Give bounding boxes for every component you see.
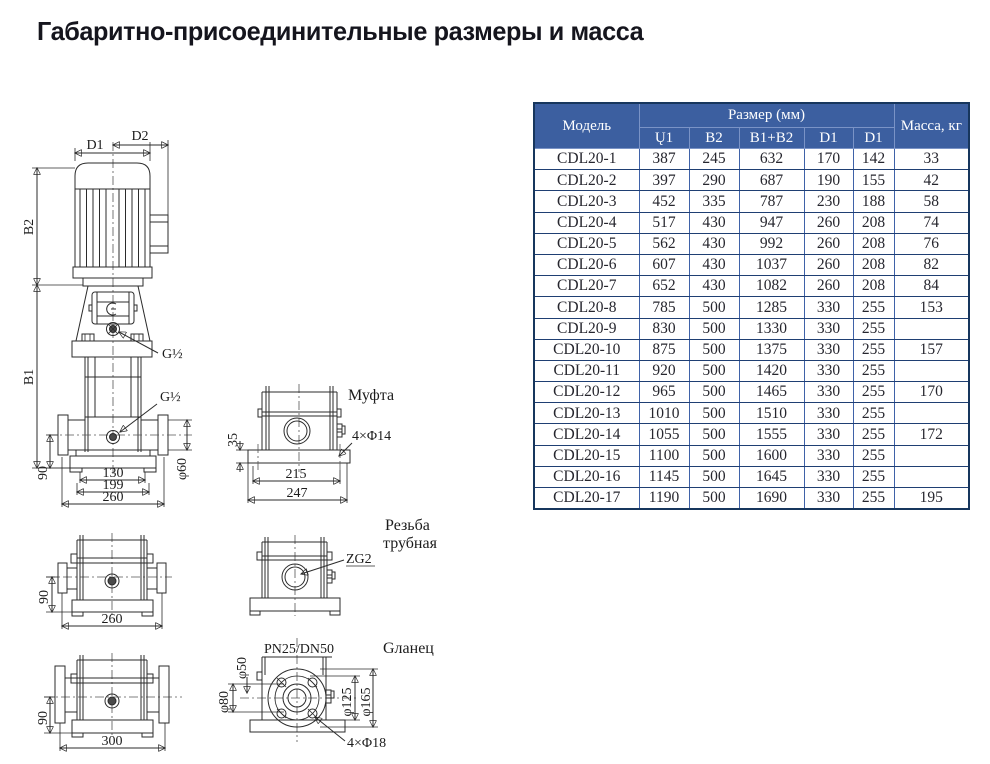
dim-label-90b: 90 <box>37 590 52 604</box>
cell-model: CDL20-2 <box>534 170 639 191</box>
cell-b2: 500 <box>689 488 739 510</box>
cell-b1b2: 1330 <box>739 318 804 339</box>
cell-d1b: 255 <box>853 318 894 339</box>
cell-d1b: 208 <box>853 212 894 233</box>
dim-label-90: 90 <box>36 466 51 480</box>
thread-caption-line2: трубная <box>383 535 438 552</box>
cell-model: CDL20-5 <box>534 233 639 254</box>
cell-b2: 500 <box>689 339 739 360</box>
dim-label-d1: D1 <box>86 138 103 153</box>
cell-d1a: 230 <box>804 191 853 212</box>
cell-d1b: 255 <box>853 382 894 403</box>
cell-model: CDL20-9 <box>534 318 639 339</box>
dim-label-phi80: φ80 <box>217 691 232 713</box>
cell-d1b: 255 <box>853 466 894 487</box>
table-row: CDL20-1310105001510330255 <box>534 403 969 424</box>
cell-mass <box>894 403 969 424</box>
cell-b1b2: 1510 <box>739 403 804 424</box>
table-row: CDL20-108755001375330255157 <box>534 339 969 360</box>
dim-label-260: 260 <box>103 490 124 505</box>
cell-model: CDL20-1 <box>534 149 639 170</box>
cell-u1: 1100 <box>639 445 689 466</box>
cell-b1b2: 1285 <box>739 297 804 318</box>
thread-caption-line1: Резьба <box>385 517 430 534</box>
cell-mass: 42 <box>894 170 969 191</box>
col-header-b2: B2 <box>689 128 739 149</box>
cell-model: CDL20-4 <box>534 212 639 233</box>
cell-d1b: 208 <box>853 254 894 275</box>
cell-d1b: 208 <box>853 233 894 254</box>
table-row: CDL20-1611455001645330255 <box>534 466 969 487</box>
cell-b1b2: 1037 <box>739 254 804 275</box>
flange-rating-label: PN25/DN50 <box>264 642 334 657</box>
cell-d1b: 208 <box>853 276 894 297</box>
cell-b1b2: 1645 <box>739 466 804 487</box>
cell-model: CDL20-8 <box>534 297 639 318</box>
cell-mass: 195 <box>894 488 969 510</box>
dim-label-phi60: φ60 <box>175 458 190 480</box>
cell-b1b2: 992 <box>739 233 804 254</box>
table-row: CDL20-345233578723018858 <box>534 191 969 212</box>
col-header-d1a: D1 <box>804 128 853 149</box>
cell-mass: 157 <box>894 339 969 360</box>
cell-d1a: 330 <box>804 424 853 445</box>
cell-u1: 785 <box>639 297 689 318</box>
cell-d1a: 330 <box>804 360 853 381</box>
cell-d1b: 255 <box>853 360 894 381</box>
col-header-d1b: D1 <box>853 128 894 149</box>
cell-b2: 500 <box>689 403 739 424</box>
dim-label-247: 247 <box>287 486 308 501</box>
table-row: CDL20-451743094726020874 <box>534 212 969 233</box>
dim-label-260b: 260 <box>102 612 123 627</box>
cell-d1a: 260 <box>804 276 853 297</box>
cell-b2: 500 <box>689 424 739 445</box>
table-row: CDL20-129655001465330255170 <box>534 382 969 403</box>
cell-b1b2: 1465 <box>739 382 804 403</box>
cell-u1: 1145 <box>639 466 689 487</box>
technical-drawings: G½ G½ D1 D2 B2 <box>0 0 520 764</box>
cell-d1a: 170 <box>804 149 853 170</box>
table-row: CDL20-1511005001600330255 <box>534 445 969 466</box>
cell-mass: 76 <box>894 233 969 254</box>
cell-model: CDL20-10 <box>534 339 639 360</box>
table-row: CDL20-1711905001690330255195 <box>534 488 969 510</box>
table-row: CDL20-556243099226020876 <box>534 233 969 254</box>
cell-u1: 452 <box>639 191 689 212</box>
cell-d1a: 260 <box>804 212 853 233</box>
cell-mass: 172 <box>894 424 969 445</box>
cell-mass: 84 <box>894 276 969 297</box>
cell-model: CDL20-17 <box>534 488 639 510</box>
table-row: CDL20-7652430108226020884 <box>534 276 969 297</box>
coupling-holes-label: 4×Φ14 <box>352 429 391 444</box>
cell-mass: 153 <box>894 297 969 318</box>
cell-b1b2: 947 <box>739 212 804 233</box>
cell-b2: 500 <box>689 360 739 381</box>
cell-u1: 1055 <box>639 424 689 445</box>
thread-size-label: ZG2 <box>346 552 372 567</box>
page: { "page": { "title": "Габаритно-присоеди… <box>0 0 990 764</box>
thread-view-drawing: ZG2 Резьба трубная <box>250 517 438 616</box>
cell-mass <box>894 466 969 487</box>
dim-label-phi125: φ125 <box>340 687 355 716</box>
dim-label-90c: 90 <box>36 711 51 725</box>
dim-label-phi50: φ50 <box>235 657 250 679</box>
table-row: CDL20-87855001285330255153 <box>534 297 969 318</box>
cell-mass: 33 <box>894 149 969 170</box>
col-header-mass: Масса, кг <box>894 103 969 149</box>
cell-u1: 920 <box>639 360 689 381</box>
cell-b2: 290 <box>689 170 739 191</box>
cell-model: CDL20-6 <box>534 254 639 275</box>
cell-u1: 397 <box>639 170 689 191</box>
col-header-size-group: Размер (мм) <box>639 103 894 128</box>
cell-b1b2: 1600 <box>739 445 804 466</box>
cell-d1b: 255 <box>853 424 894 445</box>
cell-mass <box>894 318 969 339</box>
cell-b1b2: 787 <box>739 191 804 212</box>
cell-u1: 562 <box>639 233 689 254</box>
cell-d1a: 330 <box>804 466 853 487</box>
table-body: CDL20-138724563217014233CDL20-2397290687… <box>534 149 969 510</box>
cell-model: CDL20-13 <box>534 403 639 424</box>
cell-mass: 58 <box>894 191 969 212</box>
cell-d1a: 330 <box>804 403 853 424</box>
cell-u1: 652 <box>639 276 689 297</box>
flange-caption: Gланец <box>383 640 434 657</box>
cell-b1b2: 1420 <box>739 360 804 381</box>
cell-b1b2: 1082 <box>739 276 804 297</box>
dim-label-35: 35 <box>226 433 241 447</box>
cell-u1: 830 <box>639 318 689 339</box>
cell-u1: 965 <box>639 382 689 403</box>
cell-d1a: 330 <box>804 318 853 339</box>
cell-b1b2: 1690 <box>739 488 804 510</box>
cell-d1a: 330 <box>804 488 853 510</box>
cell-d1b: 255 <box>853 488 894 510</box>
dimensions-table: Модель Размер (мм) Масса, кг Ų1 B2 B1+B2… <box>533 102 970 510</box>
cell-d1b: 188 <box>853 191 894 212</box>
cell-b2: 430 <box>689 212 739 233</box>
cell-d1b: 255 <box>853 445 894 466</box>
cell-mass: 82 <box>894 254 969 275</box>
coupling-caption: Муфта <box>348 387 394 404</box>
cell-b2: 335 <box>689 191 739 212</box>
cell-d1b: 255 <box>853 297 894 318</box>
dim-label-phi165: φ165 <box>359 687 374 716</box>
cell-model: CDL20-11 <box>534 360 639 381</box>
flange-view-drawing: PN25/DN50 φ50 φ80 φ125 φ165 <box>217 638 434 751</box>
table-header: Модель Размер (мм) Масса, кг Ų1 B2 B1+B2… <box>534 103 969 149</box>
cell-d1a: 330 <box>804 339 853 360</box>
cell-d1b: 255 <box>853 339 894 360</box>
cell-b2: 430 <box>689 233 739 254</box>
cell-b2: 500 <box>689 382 739 403</box>
cell-mass <box>894 445 969 466</box>
cell-u1: 387 <box>639 149 689 170</box>
cell-model: CDL20-14 <box>534 424 639 445</box>
dim-label-g-top: G½ <box>162 347 183 362</box>
table-row: CDL20-6607430103726020882 <box>534 254 969 275</box>
cell-d1b: 255 <box>853 403 894 424</box>
cell-u1: 1190 <box>639 488 689 510</box>
cell-b2: 430 <box>689 254 739 275</box>
dim-label-b2: B2 <box>22 219 37 235</box>
col-header-model: Модель <box>534 103 639 149</box>
cell-b1b2: 632 <box>739 149 804 170</box>
dim-label-215: 215 <box>286 467 307 482</box>
pump-front-drawing: G½ G½ D1 D2 B2 <box>22 129 192 507</box>
cell-u1: 607 <box>639 254 689 275</box>
dim-label-g-side: G½ <box>160 390 181 405</box>
cell-model: CDL20-3 <box>534 191 639 212</box>
cell-model: CDL20-7 <box>534 276 639 297</box>
cell-b2: 500 <box>689 297 739 318</box>
cell-d1a: 330 <box>804 382 853 403</box>
cell-b2: 430 <box>689 276 739 297</box>
flange-holes-label: 4×Φ18 <box>347 736 386 751</box>
table-row: CDL20-239729068719015542 <box>534 170 969 191</box>
dim-label-300: 300 <box>102 734 123 749</box>
table-row: CDL20-98305001330330255 <box>534 318 969 339</box>
coupling-base-drawing: 90 260 <box>37 533 172 629</box>
cell-d1b: 155 <box>853 170 894 191</box>
cell-mass: 74 <box>894 212 969 233</box>
table-row: CDL20-1410555001555330255172 <box>534 424 969 445</box>
cell-model: CDL20-12 <box>534 382 639 403</box>
col-header-u1: Ų1 <box>639 128 689 149</box>
cell-d1b: 142 <box>853 149 894 170</box>
cell-d1a: 330 <box>804 445 853 466</box>
flange-base-drawing: 90 300 <box>36 653 182 751</box>
dim-label-d2: D2 <box>131 129 148 144</box>
cell-mass: 170 <box>894 382 969 403</box>
dim-label-b1: B1 <box>22 369 37 385</box>
cell-d1a: 260 <box>804 233 853 254</box>
cell-model: CDL20-16 <box>534 466 639 487</box>
cell-u1: 1010 <box>639 403 689 424</box>
cell-b2: 500 <box>689 445 739 466</box>
cell-b1b2: 1555 <box>739 424 804 445</box>
cell-b2: 500 <box>689 466 739 487</box>
cell-model: CDL20-15 <box>534 445 639 466</box>
cell-b1b2: 687 <box>739 170 804 191</box>
cell-mass <box>894 360 969 381</box>
cell-u1: 517 <box>639 212 689 233</box>
cell-b2: 500 <box>689 318 739 339</box>
table-row: CDL20-119205001420330255 <box>534 360 969 381</box>
table-row: CDL20-138724563217014233 <box>534 149 969 170</box>
cell-d1a: 330 <box>804 297 853 318</box>
cell-b2: 245 <box>689 149 739 170</box>
col-header-b1b2: B1+B2 <box>739 128 804 149</box>
cell-b1b2: 1375 <box>739 339 804 360</box>
cell-d1a: 260 <box>804 254 853 275</box>
coupling-view-drawing: Муфта 4×Φ14 35 215 247 <box>226 384 394 503</box>
cell-d1a: 190 <box>804 170 853 191</box>
cell-u1: 875 <box>639 339 689 360</box>
